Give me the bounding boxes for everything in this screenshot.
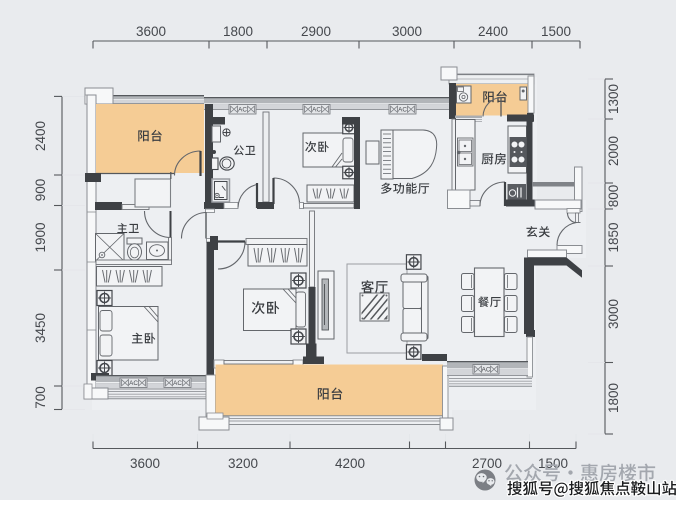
svg-text:AC: AC xyxy=(238,107,247,114)
svg-text:800: 800 xyxy=(606,185,621,208)
svg-text:AC: AC xyxy=(312,107,321,114)
svg-text:1900: 1900 xyxy=(33,222,48,252)
svg-text:1800: 1800 xyxy=(606,383,621,413)
svg-text:AC: AC xyxy=(173,380,182,387)
svg-text:AC: AC xyxy=(482,367,491,374)
svg-text:700: 700 xyxy=(33,386,48,409)
svg-text:1850: 1850 xyxy=(606,222,621,252)
svg-text:900: 900 xyxy=(33,179,48,202)
svg-text:1500: 1500 xyxy=(541,24,571,39)
svg-text:AC: AC xyxy=(398,107,407,114)
svg-text:3200: 3200 xyxy=(228,456,258,471)
svg-text:2000: 2000 xyxy=(606,136,621,166)
svg-text:1300: 1300 xyxy=(606,84,621,114)
svg-text:3600: 3600 xyxy=(136,24,166,39)
svg-text:4200: 4200 xyxy=(335,456,365,471)
svg-text:3450: 3450 xyxy=(33,313,48,343)
svg-text:3000: 3000 xyxy=(606,299,621,329)
svg-text:AC: AC xyxy=(129,380,138,387)
svg-text:2900: 2900 xyxy=(301,24,331,39)
svg-text:3600: 3600 xyxy=(130,456,160,471)
svg-text:2400: 2400 xyxy=(33,121,48,151)
svg-text:2700: 2700 xyxy=(472,456,502,471)
svg-text:3000: 3000 xyxy=(392,24,422,39)
svg-text:1800: 1800 xyxy=(223,24,253,39)
svg-text:2400: 2400 xyxy=(478,24,508,39)
